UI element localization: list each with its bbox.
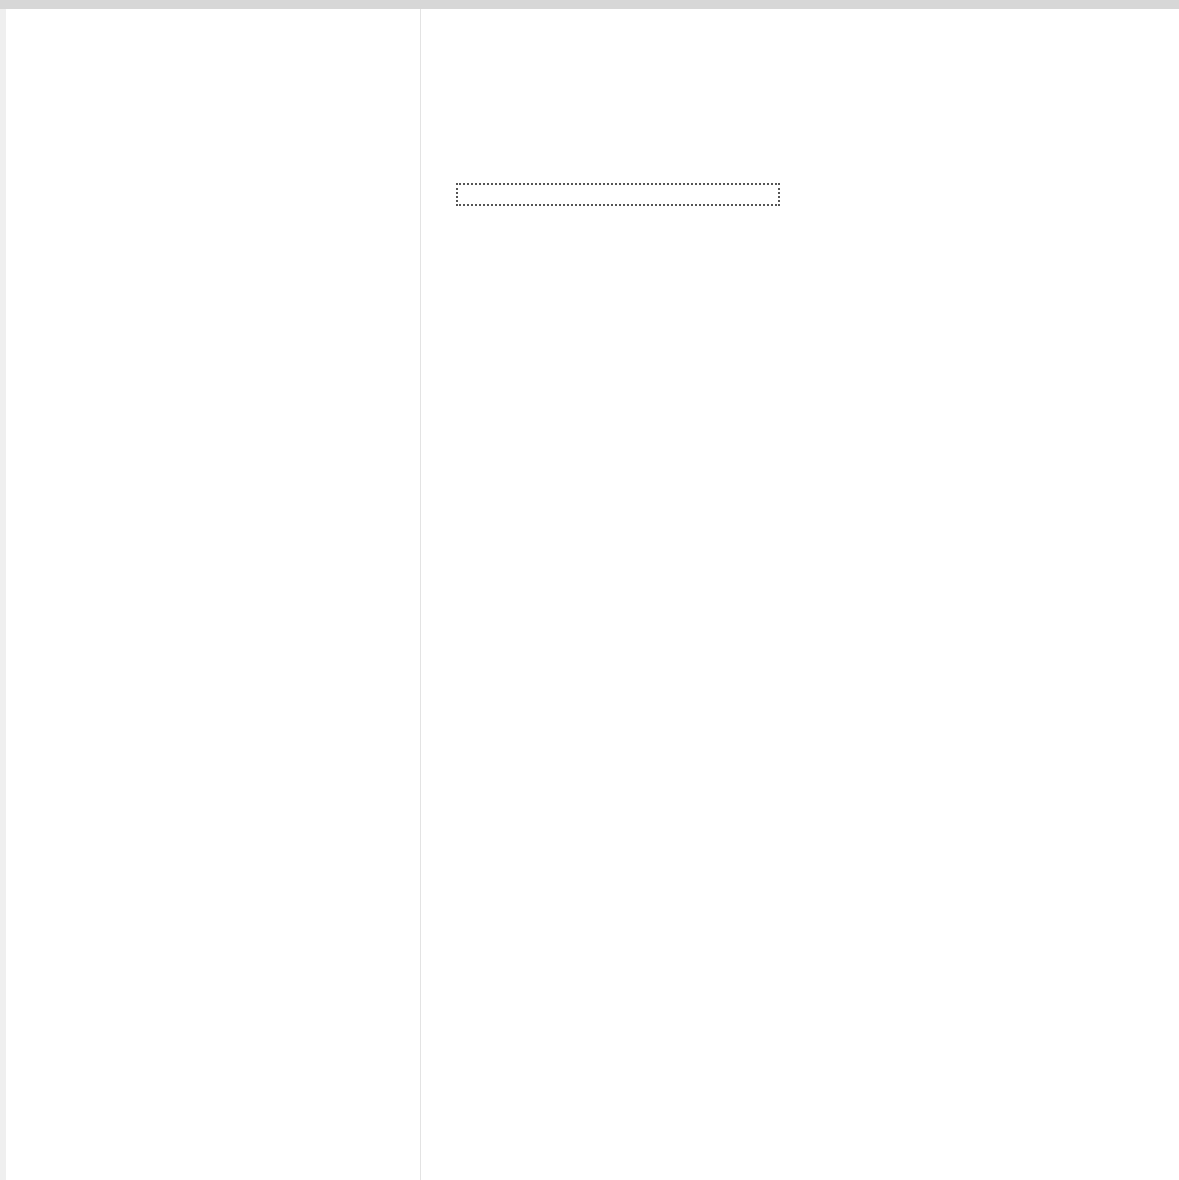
hermandad-crest-logo (115, 247, 311, 455)
map-note (456, 183, 780, 206)
window-top-edge (0, 0, 1179, 9)
legend-panel (6, 9, 421, 1180)
semana-santa-jerez-pedestrian-map-poster: { "panel": { "title_line1": "Pasos de", … (0, 0, 1179, 1180)
crossing-list (6, 227, 420, 241)
page-title (6, 9, 420, 35)
pedestrian-crossing-icon (91, 45, 335, 223)
